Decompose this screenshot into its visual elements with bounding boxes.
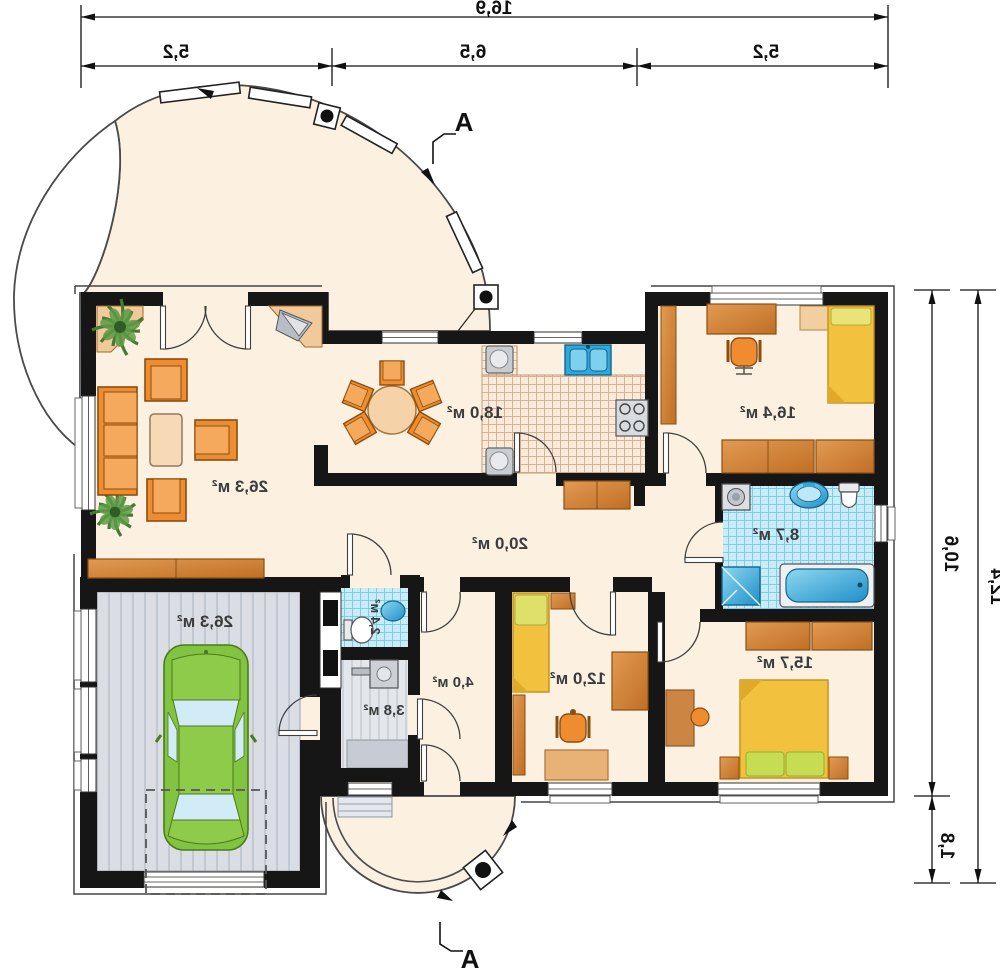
svg-text:16,9: 16,9: [476, 0, 513, 19]
svg-text:3,8 м²: 3,8 м²: [363, 702, 404, 719]
svg-text:15,7 м²: 15,7 м²: [757, 653, 813, 672]
svg-text:6,5: 6,5: [459, 42, 486, 63]
svg-text:12,0 м²: 12,0 м²: [550, 669, 606, 688]
svg-text:26,3 м²: 26,3 м²: [212, 477, 268, 496]
svg-text:5,2: 5,2: [163, 42, 189, 63]
svg-text:4,0 м²: 4,0 м²: [432, 674, 473, 691]
svg-text:A: A: [454, 107, 473, 137]
svg-text:18,0 м²: 18,0 м²: [447, 403, 503, 422]
svg-text:A: A: [460, 944, 479, 971]
svg-text:20,0 м²: 20,0 м²: [472, 534, 528, 553]
svg-text:16,4 м²: 16,4 м²: [740, 403, 796, 422]
svg-text:5,2: 5,2: [753, 42, 779, 63]
svg-text:10,6: 10,6: [940, 536, 961, 573]
svg-text:8,7 м²: 8,7 м²: [752, 525, 799, 544]
svg-text:1,8: 1,8: [936, 833, 957, 859]
svg-text:26,3 м²: 26,3 м²: [177, 612, 233, 631]
svg-text:2,4 м²: 2,4 м²: [368, 599, 383, 635]
svg-text:12,4: 12,4: [986, 568, 1000, 605]
